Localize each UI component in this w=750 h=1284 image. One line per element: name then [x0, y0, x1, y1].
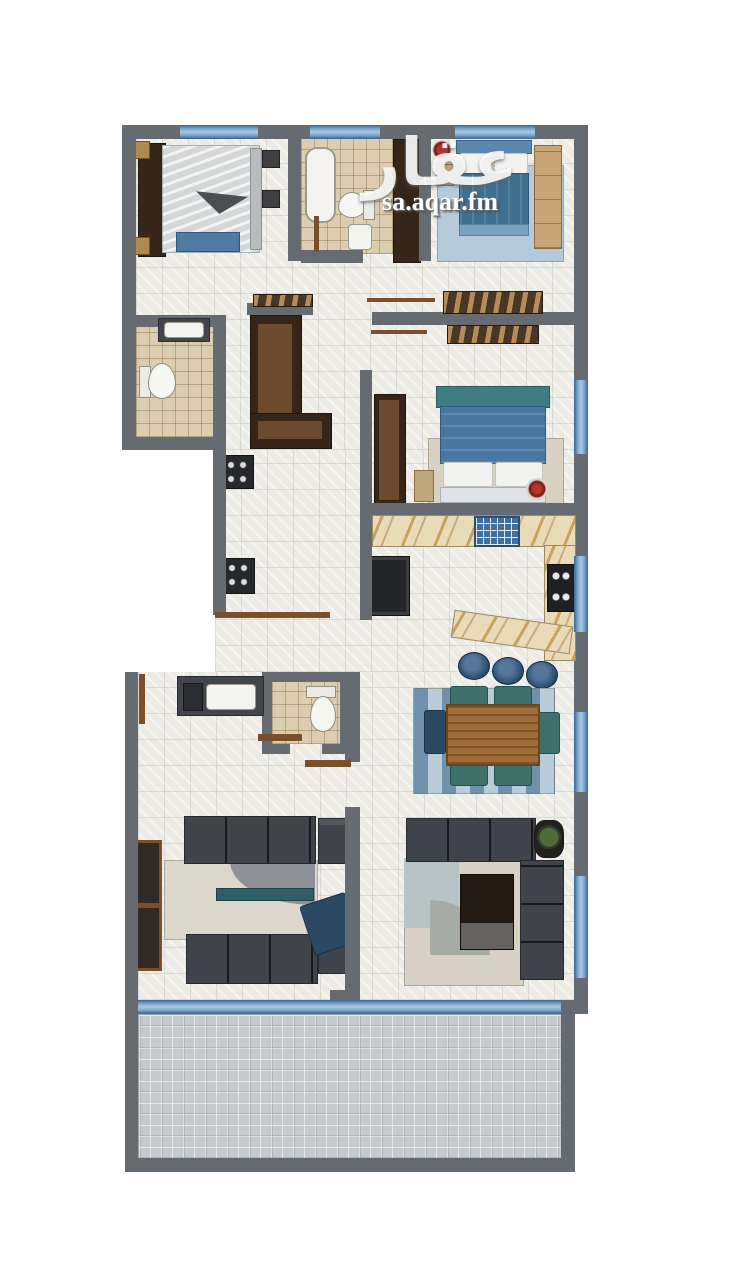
console-table-icon: [253, 294, 313, 307]
window-icon: [574, 556, 588, 632]
wall: [360, 515, 372, 620]
window-icon: [180, 125, 258, 139]
sofa-icon: [186, 934, 318, 984]
washer-icon: [222, 455, 254, 489]
wall: [125, 672, 138, 685]
dining-chair-icon: [538, 712, 560, 754]
dining-table-icon: [446, 704, 540, 766]
dining-chair-icon: [450, 764, 488, 786]
wall: [213, 315, 226, 615]
bed-foot-icon: [459, 224, 529, 236]
sectional-sofa-icon: [406, 818, 536, 862]
vanity-cabinet-icon: [183, 683, 203, 711]
headboard-icon: [250, 148, 262, 250]
washbasin-icon: [164, 322, 204, 338]
dryer-icon: [223, 558, 255, 594]
wall: [360, 370, 372, 515]
wall: [345, 807, 360, 1007]
bar-stool-icon: [526, 661, 558, 689]
coffee-table-icon: [216, 888, 314, 901]
wall: [262, 672, 350, 682]
wall: [288, 139, 301, 261]
bench-icon: [176, 232, 240, 252]
window-icon: [574, 380, 588, 454]
bar-stool-icon: [492, 657, 524, 685]
wall: [262, 744, 290, 754]
nightstand-icon: [262, 150, 280, 168]
bathtub-icon: [305, 147, 336, 223]
wall: [345, 672, 360, 762]
fridge-icon: [366, 556, 410, 616]
wall: [122, 437, 215, 450]
bed-blanket-icon: [440, 406, 546, 464]
sofa-icon: [184, 816, 316, 864]
bar-stool-icon: [458, 652, 490, 680]
wall: [372, 503, 574, 515]
console-table-icon: [447, 325, 539, 344]
wardrobe-knob-icon: [134, 237, 150, 255]
watermark-site-text: sa.aqar.fm: [372, 187, 508, 217]
console-table-icon: [443, 291, 543, 314]
washbasin-icon: [348, 224, 372, 250]
terrace-pavers: [138, 1014, 563, 1160]
plant-icon: [534, 820, 564, 858]
wall: [125, 1158, 575, 1172]
door-swing-icon: [305, 760, 351, 767]
dining-chair-icon: [424, 710, 446, 754]
coffee-table-icon: [460, 874, 514, 950]
floorplan-image: عقار sa.aqar.fm: [0, 0, 750, 1284]
door-swing-icon: [371, 330, 427, 334]
door-swing-icon: [367, 298, 435, 302]
kitchen-sink-icon: [474, 516, 520, 547]
wall: [561, 1000, 575, 1172]
window-icon: [574, 876, 588, 978]
door-swing-icon: [258, 734, 302, 741]
toilet-icon: [148, 363, 176, 399]
dining-chair-icon: [494, 764, 532, 786]
glass-wall: [138, 1000, 561, 1014]
wall: [125, 672, 138, 1172]
sectional-sofa-icon: [520, 860, 564, 980]
window-icon: [574, 712, 588, 792]
wardrobe-knob-icon: [134, 141, 150, 159]
entry-door-icon: [139, 674, 145, 724]
pillow-icon: [443, 462, 493, 487]
wardrobe-shelf-icon: [379, 400, 399, 500]
wall: [122, 125, 136, 450]
toilet-icon: [310, 696, 336, 732]
wall: [301, 250, 363, 263]
wardrobe-icon: [534, 145, 562, 249]
door-swing-icon: [215, 612, 330, 618]
shower-screen-icon: [314, 216, 319, 252]
red-plant-icon: [526, 478, 548, 500]
washbasin-icon: [206, 684, 256, 710]
nightstand-icon: [262, 190, 280, 208]
cooktop-icon: [547, 564, 575, 612]
closet-shelf-icon: [258, 421, 322, 439]
nightstand-icon: [414, 470, 434, 502]
bed-foot-bench-icon: [436, 386, 550, 408]
